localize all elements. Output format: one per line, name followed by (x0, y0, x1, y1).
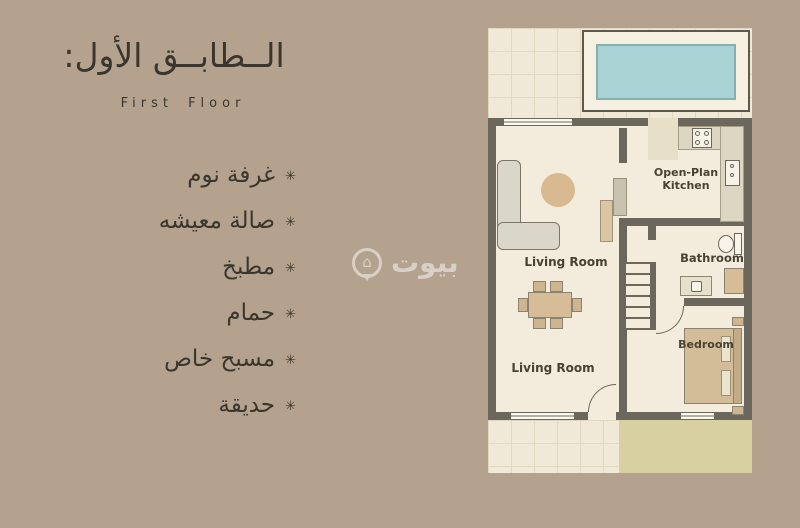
room-label-kitchen: Open-Plan Kitchen (646, 167, 726, 192)
room-label-bathroom: Bathroom (674, 252, 750, 265)
flyer: الــطابــق الأول: First Floor ✳ غرفة نوم… (0, 0, 800, 528)
pool-deck (582, 30, 750, 112)
list-item: ✳ حمام (26, 290, 296, 336)
asterisk-bullet-icon: ✳ (285, 353, 296, 368)
page-title: الــطابــق الأول: (36, 36, 312, 76)
window (503, 118, 573, 126)
cabinet (613, 178, 627, 216)
asterisk-bullet-icon: ✳ (285, 215, 296, 230)
sofa (497, 222, 560, 250)
garden-area (619, 420, 752, 473)
list-item: ✳ مطبخ (26, 244, 296, 290)
wall-segment (684, 298, 744, 306)
room-label-bedroom: Bedroom (670, 339, 742, 352)
asterisk-bullet-icon: ✳ (285, 307, 296, 322)
feature-label: مسبح خاص (164, 346, 275, 372)
room-label-living-upper: Living Room (516, 256, 616, 270)
map-pin-icon: ⌂ (352, 248, 382, 278)
list-item: ✳ صالة معيشه (26, 198, 296, 244)
brand-name: بيوت (391, 246, 459, 279)
feature-label: حديقة (218, 392, 275, 418)
window (510, 412, 575, 420)
bathroom-vanity (680, 276, 712, 296)
console-table (600, 200, 613, 242)
feature-list: ✳ غرفة نوم ✳ صالة معيشه ✳ مطبخ ✳ حمام ✳ … (26, 152, 296, 428)
patio-bottom (488, 420, 619, 473)
feature-label: حمام (226, 300, 275, 326)
staircase (620, 262, 656, 330)
door-opening (648, 118, 678, 126)
floor-plan: Open-Plan Kitchen Living Room Living Roo… (488, 28, 752, 473)
page-subtitle: First Floor (63, 96, 303, 111)
chair (572, 298, 582, 312)
brand-watermark: ⌂ بيوت (352, 246, 459, 279)
house-icon: ⌂ (362, 255, 372, 270)
feature-label: صالة معيشه (159, 208, 275, 234)
dining-table (528, 292, 572, 318)
room-label-living-lower: Living Room (503, 362, 603, 376)
wall-segment (619, 128, 627, 163)
window (680, 412, 715, 420)
swimming-pool (596, 44, 736, 100)
chair (550, 281, 563, 292)
asterisk-bullet-icon: ✳ (285, 399, 296, 414)
feature-label: مطبخ (222, 254, 275, 280)
door-opening (588, 412, 616, 420)
stove-icon (692, 128, 712, 148)
list-item: ✳ غرفة نوم (26, 152, 296, 198)
round-rug (541, 173, 575, 207)
feature-label: غرفة نوم (187, 162, 275, 188)
list-item: ✳ مسبح خاص (26, 336, 296, 382)
cabinet (724, 268, 744, 294)
chair (533, 281, 546, 292)
kitchen-sink-icon (725, 160, 740, 186)
nightstand (732, 406, 744, 415)
chair (518, 298, 528, 312)
chair (550, 318, 563, 329)
list-item: ✳ حديقة (26, 382, 296, 428)
wall-segment (648, 226, 656, 240)
entry-threshold (648, 126, 678, 160)
asterisk-bullet-icon: ✳ (285, 169, 296, 184)
asterisk-bullet-icon: ✳ (285, 261, 296, 276)
chair (533, 318, 546, 329)
nightstand (732, 317, 744, 326)
